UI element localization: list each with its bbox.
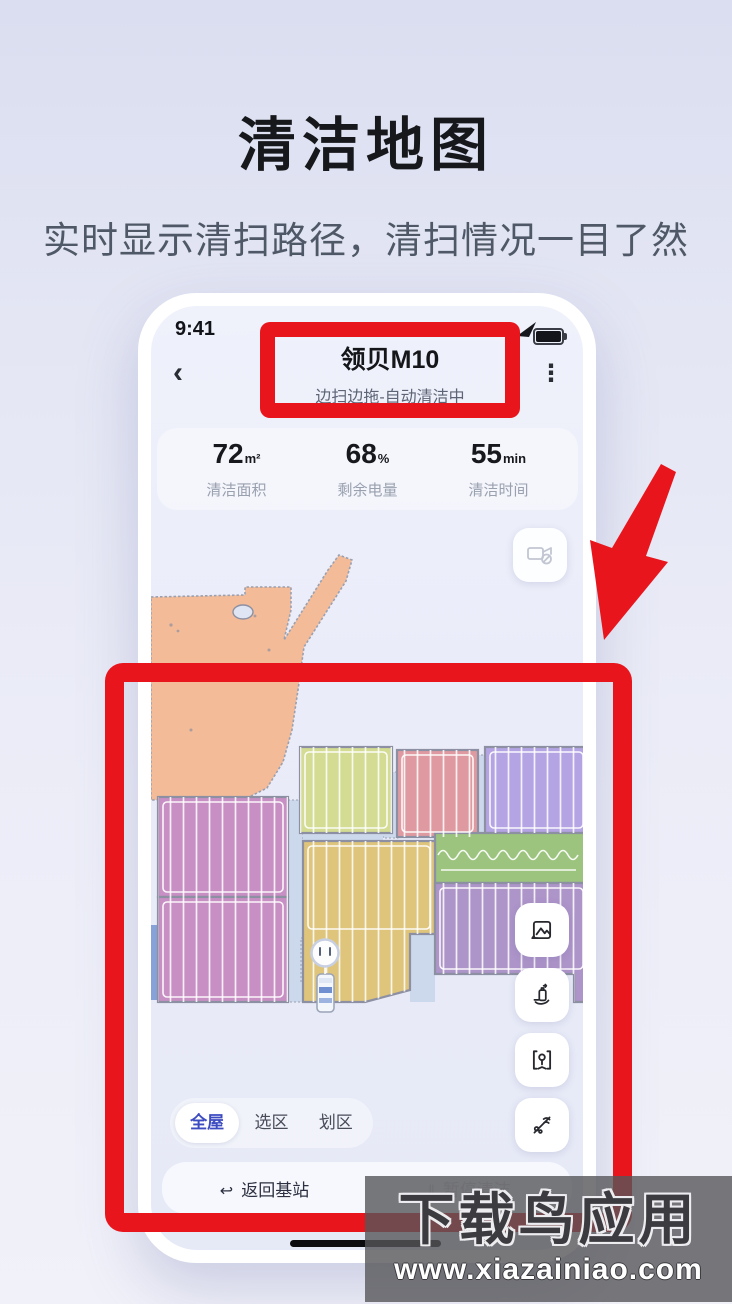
watermark-url: www.xiazainiao.com xyxy=(394,1253,703,1287)
annotation-arrow-icon xyxy=(575,450,695,650)
watermark: 下载鸟应用 www.xiazainiao.com xyxy=(365,1176,732,1302)
stat-area-label: 清洁面积 xyxy=(206,479,266,500)
stat-battery-unit: % xyxy=(378,451,390,466)
stat-time-value: 55 xyxy=(471,438,502,469)
annotation-box-title xyxy=(260,322,520,418)
stat-area: 72m² 清洁面积 xyxy=(206,438,266,500)
stat-battery-value: 68 xyxy=(346,438,377,469)
stat-time-label: 清洁时间 xyxy=(468,479,528,500)
stat-battery-label: 剩余电量 xyxy=(337,479,397,500)
stat-area-unit: m² xyxy=(245,451,261,466)
stat-area-value: 72 xyxy=(212,438,243,469)
stats-card: 72m² 清洁面积 68% 剩余电量 55min 清洁时间 xyxy=(157,428,578,510)
page: 清洁地图 实时显示清扫路径，清扫情况一目了然 9:41 ‹ 领贝M10 边扫边拖… xyxy=(0,0,732,1304)
battery-icon xyxy=(533,328,564,345)
stat-time: 55min 清洁时间 xyxy=(468,438,528,500)
page-title: 清洁地图 xyxy=(0,98,732,182)
annotation-box-map xyxy=(105,663,632,1232)
page-subtitle: 实时显示清扫路径，清扫情况一目了然 xyxy=(0,210,732,264)
watermark-text: 下载鸟应用 xyxy=(399,1191,699,1250)
back-button[interactable]: ‹ xyxy=(173,358,183,388)
stat-time-unit: min xyxy=(503,451,526,466)
stat-battery: 68% 剩余电量 xyxy=(337,438,397,500)
status-time: 9:41 xyxy=(175,318,215,341)
kebab-menu-icon[interactable]: ⋮ xyxy=(539,362,563,386)
